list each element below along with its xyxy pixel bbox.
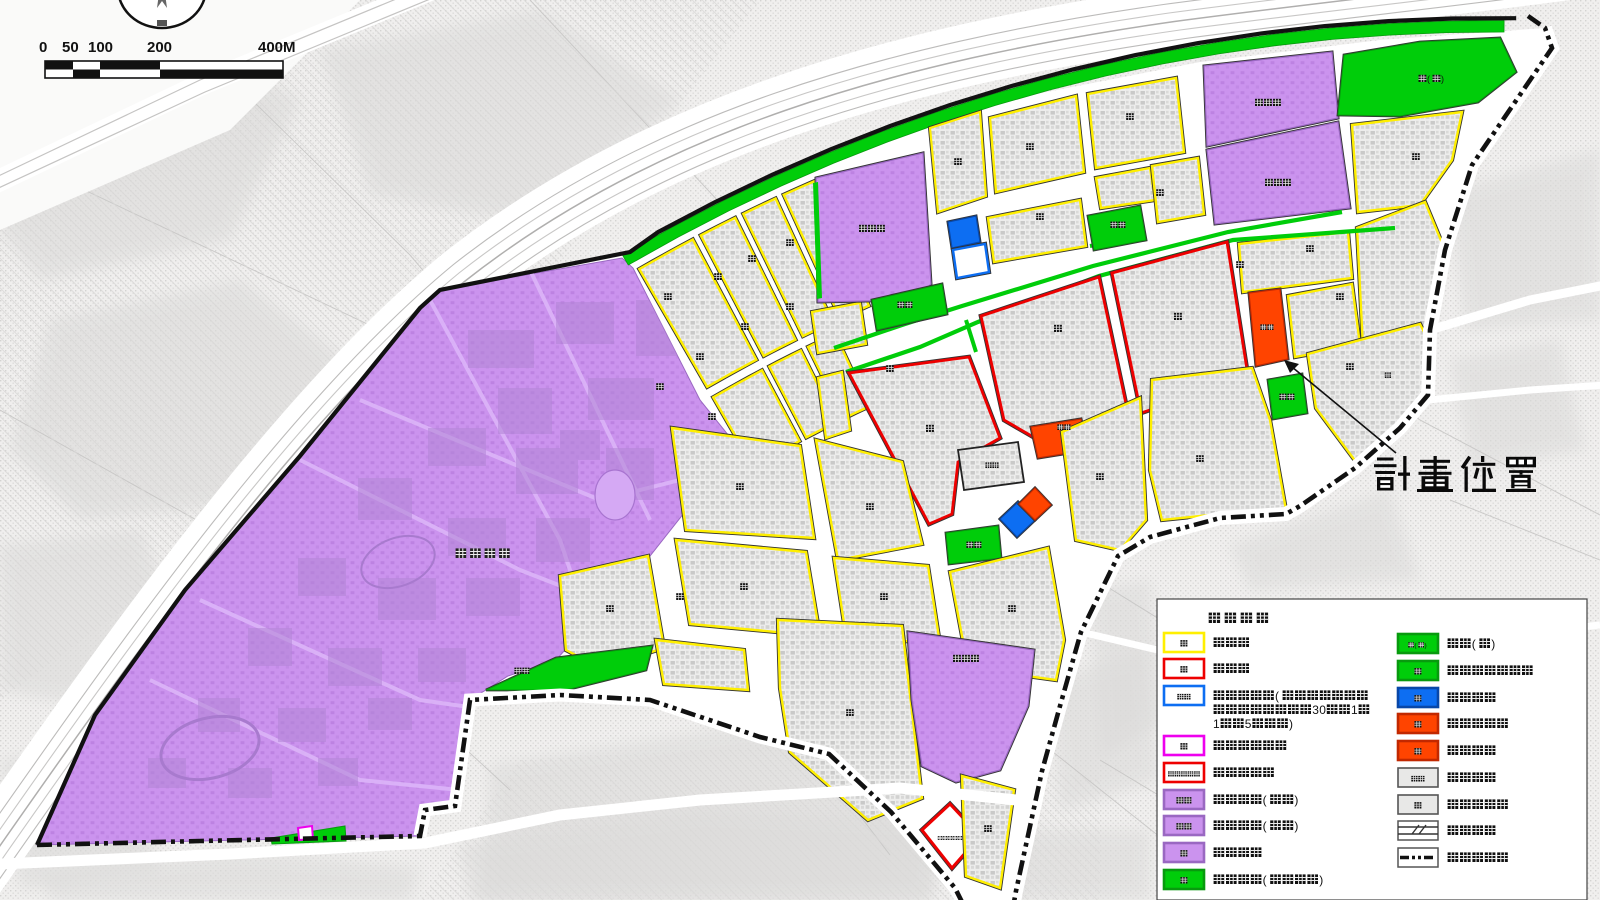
svg-text:1: 1 [1351,703,1358,717]
svg-text:50: 50 [62,39,79,56]
svg-text:0: 0 [39,39,47,56]
svg-text:(: ( [1472,637,1476,651]
svg-text:0: 0 [1319,703,1326,717]
svg-text:5: 5 [1245,717,1252,731]
svg-text:1: 1 [1213,717,1220,731]
svg-text:3: 3 [1312,703,1319,717]
svg-text:): ) [1289,717,1293,731]
svg-text:): ) [1294,819,1298,833]
svg-text:(: ( [1263,819,1267,833]
svg-text:): ) [1319,873,1323,887]
svg-text:): ) [1441,74,1444,84]
svg-text:): ) [1491,637,1495,651]
svg-text:100: 100 [88,39,113,56]
svg-text:400M: 400M [258,39,296,56]
svg-text:(: ( [1263,873,1267,887]
svg-text:): ) [1294,793,1298,807]
svg-text:200: 200 [147,39,172,56]
svg-text:): ) [1425,643,1427,650]
svg-text:(: ( [1427,74,1430,84]
svg-text:(: ( [1263,793,1267,807]
svg-text:(: ( [1275,689,1279,703]
